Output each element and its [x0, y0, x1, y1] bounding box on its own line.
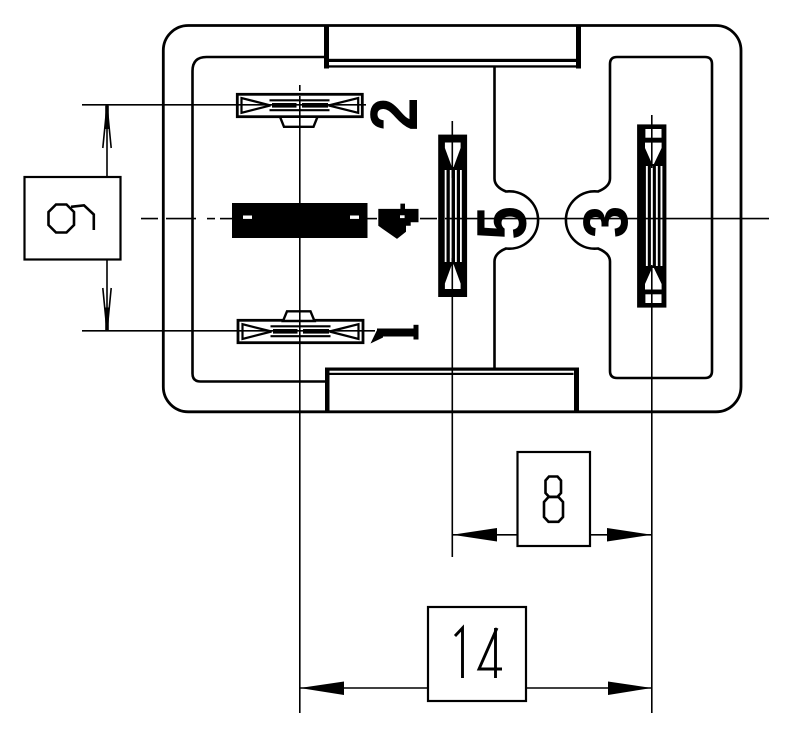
svg-text:5: 5: [462, 206, 541, 239]
svg-text:2: 2: [358, 98, 431, 131]
svg-text:3: 3: [570, 206, 641, 238]
